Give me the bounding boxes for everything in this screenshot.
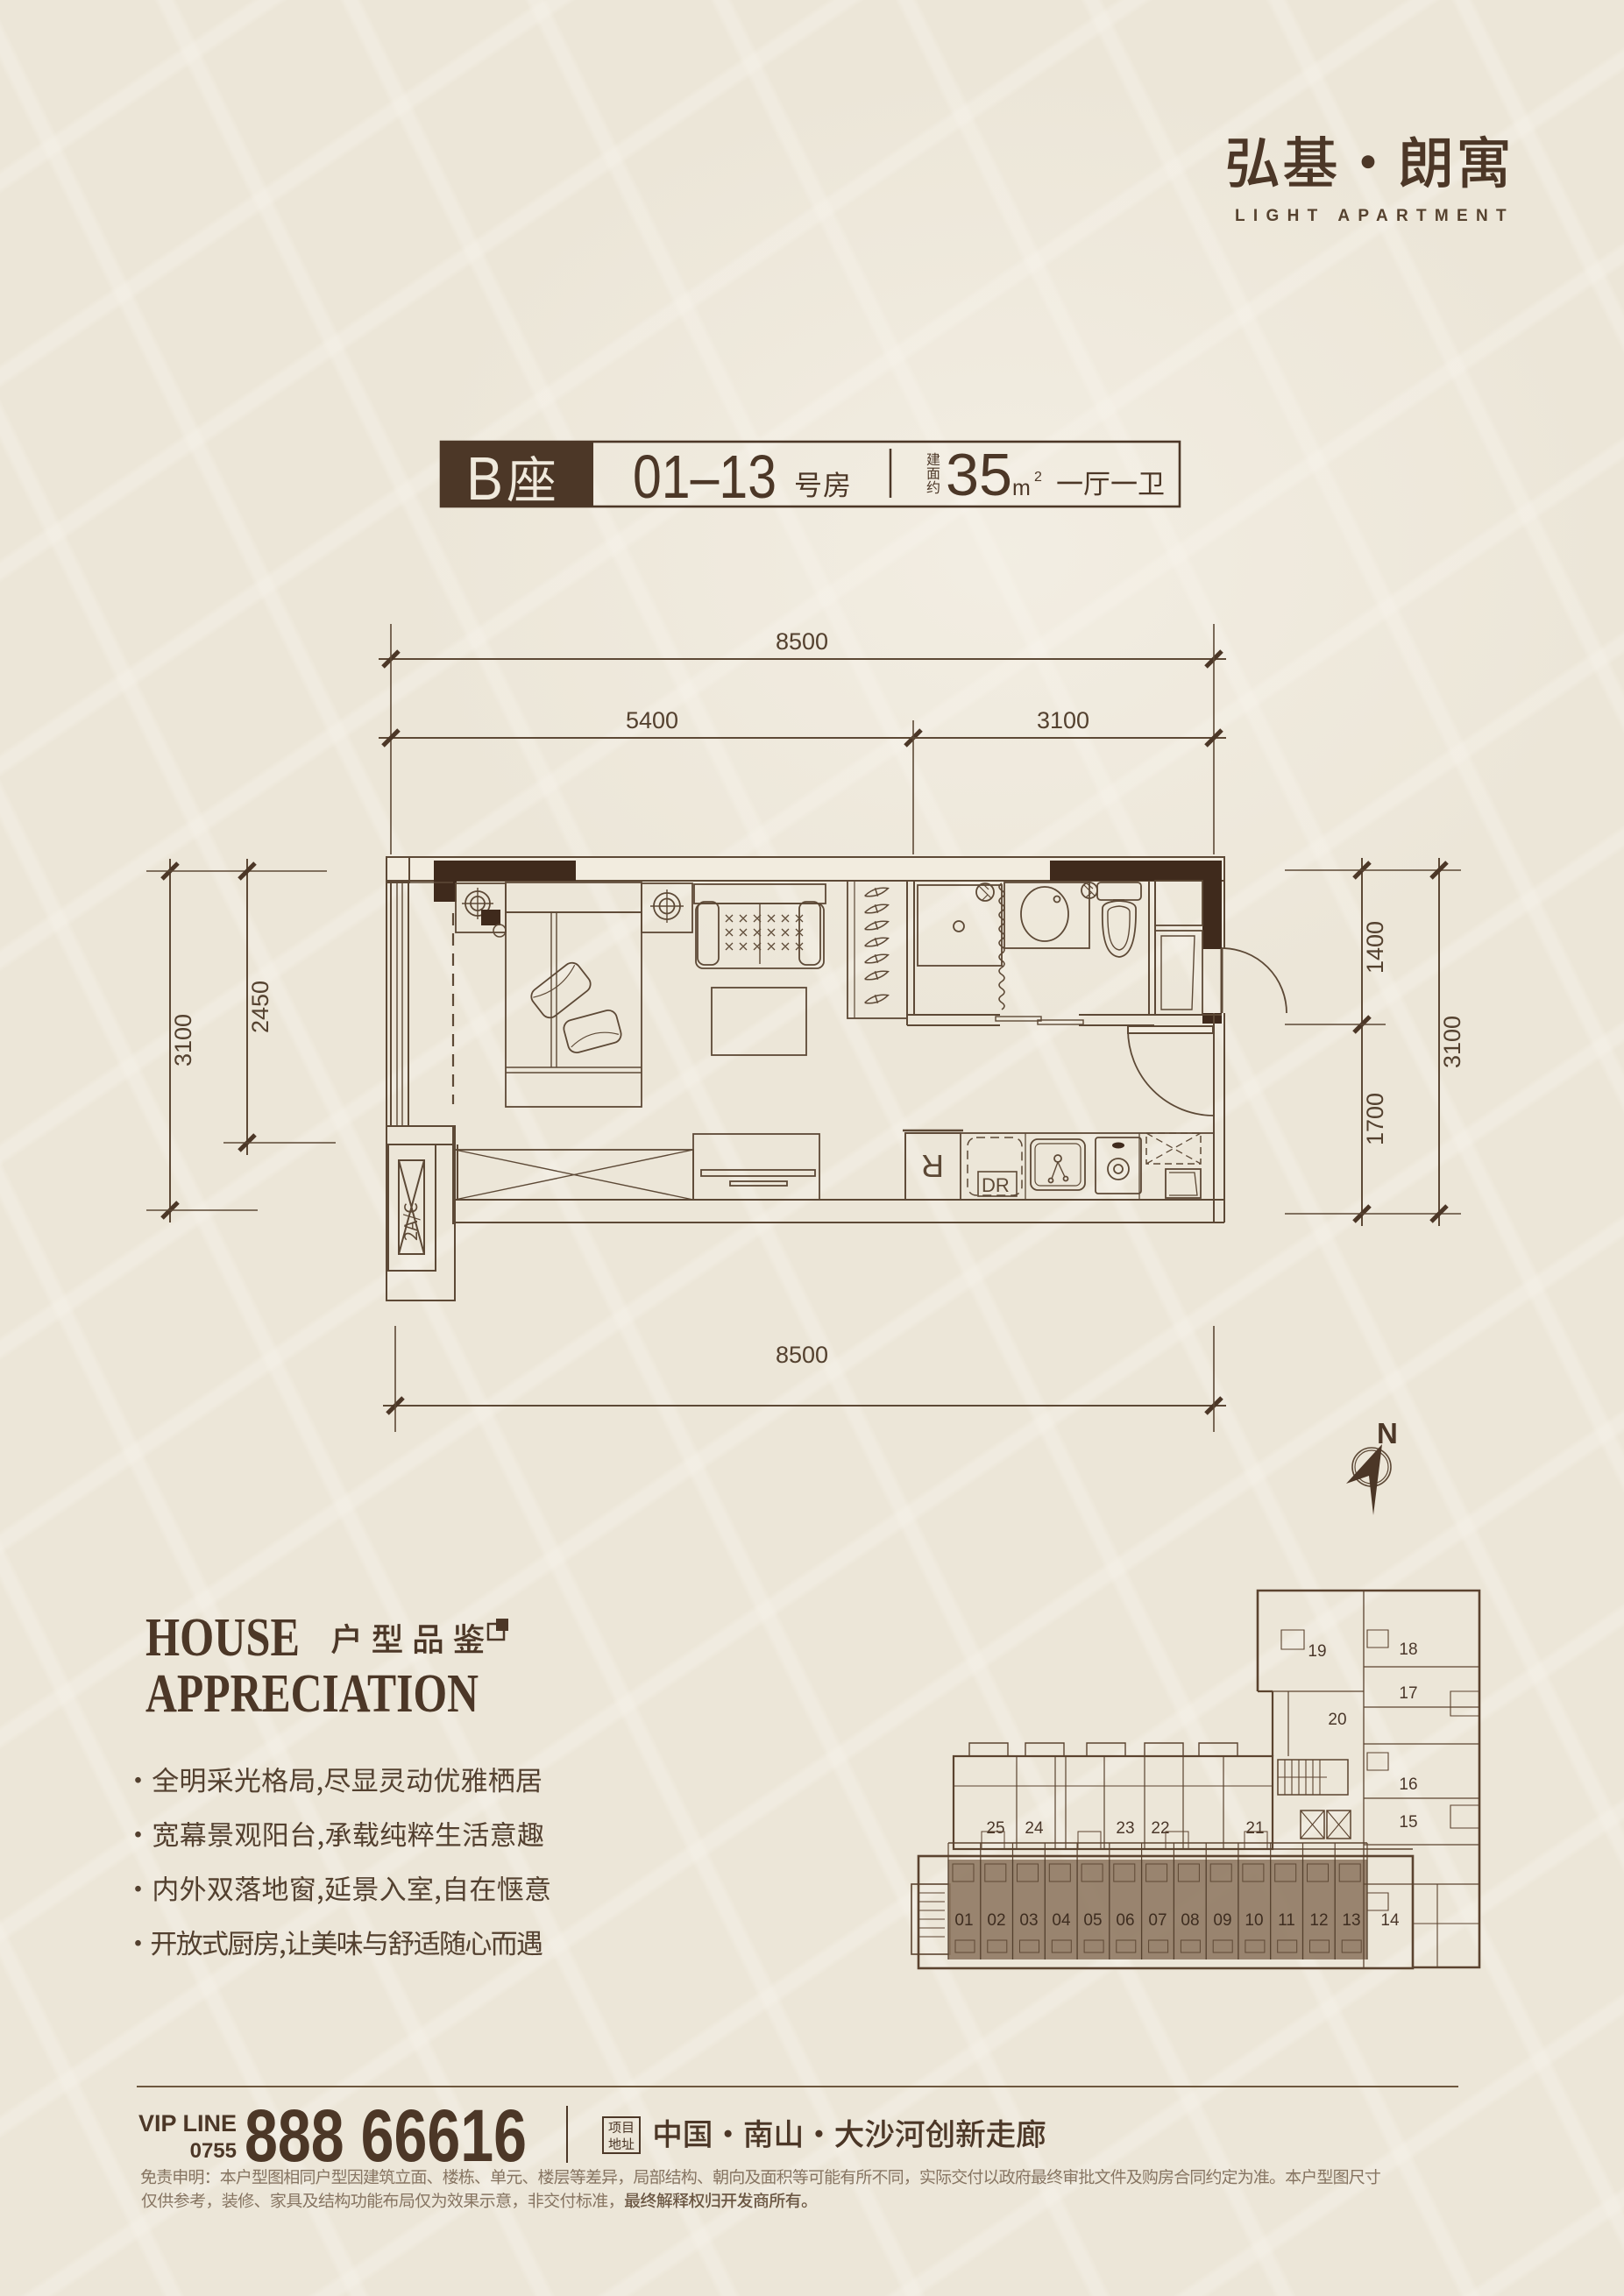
- svg-text:03: 03: [1019, 1911, 1038, 1930]
- svg-text:24: 24: [1025, 1819, 1044, 1838]
- svg-text:04: 04: [1052, 1911, 1071, 1930]
- svg-text:17: 17: [1399, 1684, 1417, 1703]
- svg-text:15: 15: [1399, 1813, 1417, 1832]
- svg-text:07: 07: [1148, 1911, 1167, 1930]
- svg-text:02: 02: [987, 1911, 1005, 1930]
- svg-text:0755: 0755: [190, 2139, 237, 2163]
- svg-text:05: 05: [1083, 1911, 1102, 1930]
- svg-text:14: 14: [1380, 1911, 1400, 1930]
- svg-text:11: 11: [1278, 1911, 1295, 1930]
- svg-text:10: 10: [1245, 1911, 1263, 1930]
- svg-text:888 66616: 888 66616: [245, 2094, 527, 2177]
- svg-text:12: 12: [1309, 1911, 1328, 1930]
- svg-text:VIP LINE: VIP LINE: [138, 2110, 237, 2137]
- svg-text:01: 01: [954, 1911, 973, 1930]
- svg-text:23: 23: [1116, 1819, 1134, 1838]
- svg-text:25: 25: [986, 1819, 1004, 1838]
- svg-text:08: 08: [1181, 1911, 1199, 1930]
- svg-text:21: 21: [1245, 1819, 1264, 1838]
- svg-text:06: 06: [1116, 1911, 1134, 1930]
- svg-text:HOUSE: HOUSE: [145, 1608, 300, 1668]
- svg-text:19: 19: [1308, 1642, 1326, 1661]
- svg-text:09: 09: [1213, 1911, 1231, 1930]
- svg-text:16: 16: [1399, 1775, 1417, 1794]
- svg-text:APPRECIATION: APPRECIATION: [145, 1664, 479, 1724]
- svg-text:20: 20: [1328, 1711, 1346, 1729]
- svg-text:22: 22: [1151, 1819, 1169, 1838]
- svg-text:18: 18: [1399, 1641, 1417, 1659]
- svg-text:13: 13: [1342, 1911, 1360, 1930]
